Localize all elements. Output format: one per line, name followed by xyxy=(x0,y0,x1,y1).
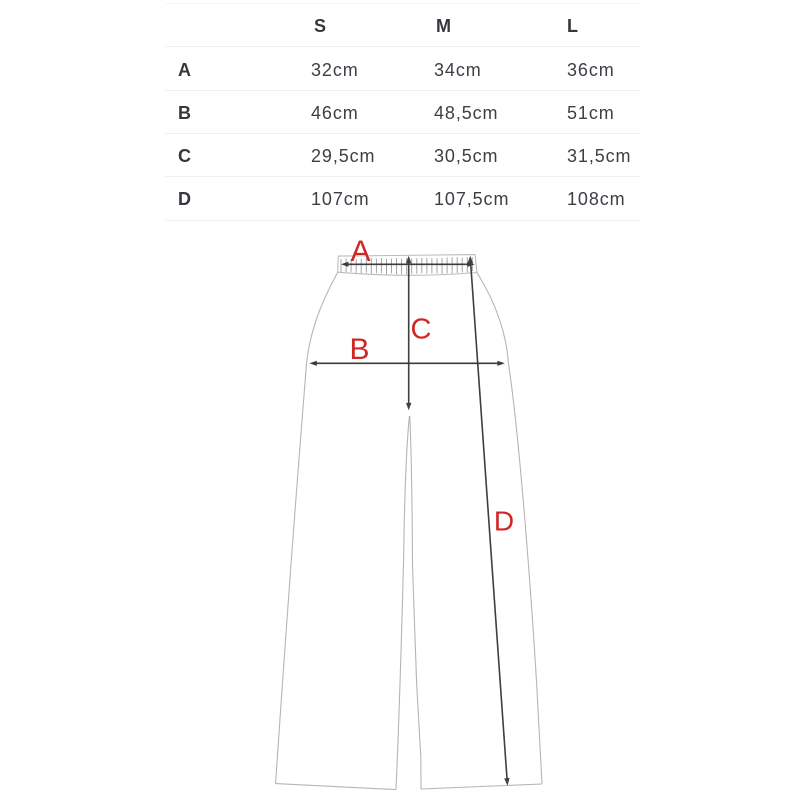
svg-text:D: D xyxy=(494,506,514,537)
svg-text:B: B xyxy=(349,333,369,366)
svg-text:A: A xyxy=(350,235,370,268)
svg-text:C: C xyxy=(411,314,432,346)
